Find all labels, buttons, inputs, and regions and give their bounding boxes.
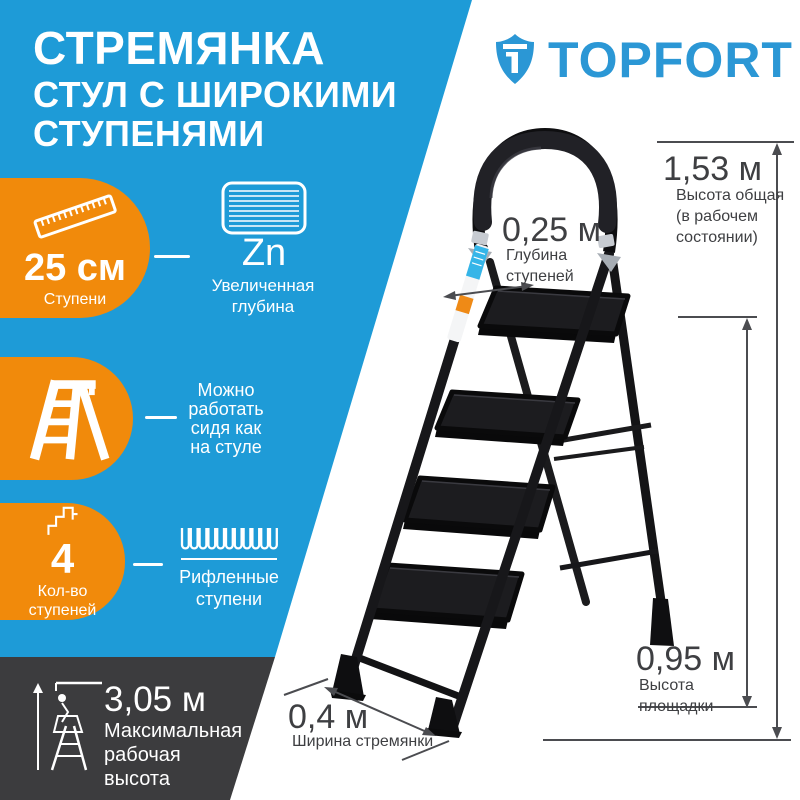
product-infographic: СТРЕМЯНКА СТУЛ С ШИРОКИМИ СТУПЕНЯМИ TOPF… [0,0,800,800]
platform-height-label-line-1: Высота [639,676,713,697]
step-depth-value: 0,25 м [502,211,601,250]
platform-height-value: 0,95 м [636,640,735,679]
step-depth-label-line-2: ступеней [506,267,574,288]
total-height-label: Высота общая (в рабочем состоянии) [676,186,784,248]
platform-height-label-line-2: площадки [639,697,713,718]
step-depth-label-line-1: Глубина [506,246,574,267]
step-depth-label: Глубина ступеней [506,246,574,288]
total-height-label-line-1: Высота общая [676,186,784,207]
total-height-value: 1,53 м [663,150,762,189]
total-height-label-line-3: состоянии) [676,228,784,249]
total-height-label-line-2: (в рабочем [676,207,784,228]
platform-height-label: Высота площадки [639,676,713,718]
ladder-width-label: Ширина стремянки [292,732,433,753]
